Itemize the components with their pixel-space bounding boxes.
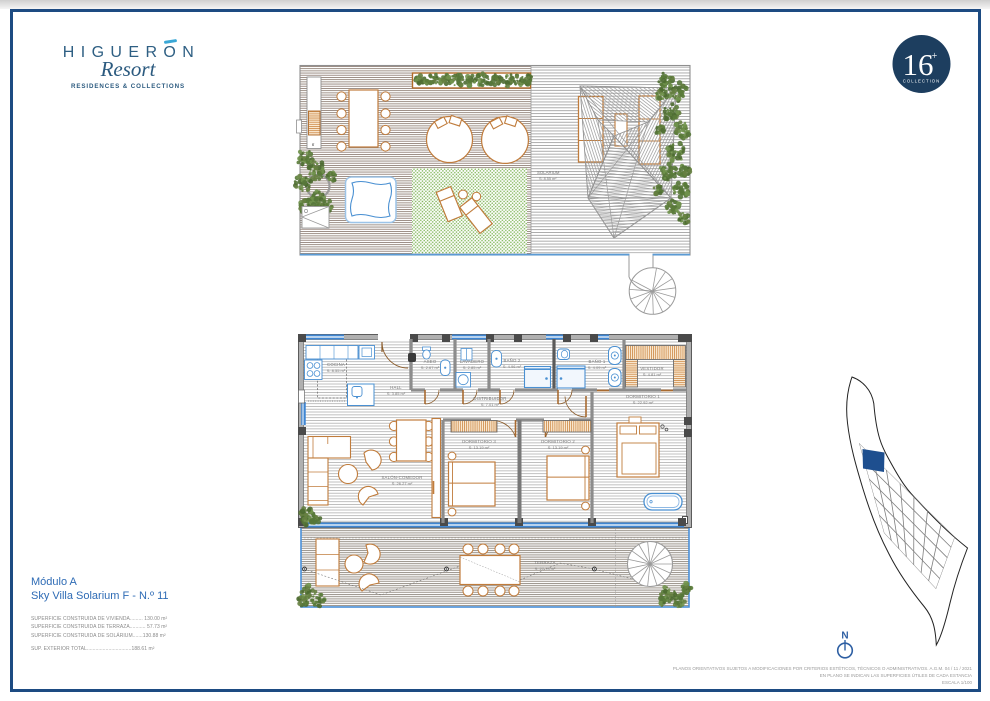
svg-text:S: 3.85 m²: S: 3.85 m² [387, 391, 406, 396]
svg-text:S: 4.81 m²: S: 4.81 m² [643, 372, 662, 377]
svg-text:S: 2.67 m²: S: 2.67 m² [421, 365, 440, 370]
svg-text:S: 4.09 m²: S: 4.09 m² [588, 365, 607, 370]
svg-text:DISTRIBUIDOR: DISTRIBUIDOR [473, 396, 506, 401]
svg-text:S: 7.01 m²: S: 7.01 m² [481, 402, 500, 407]
svg-text:SOLARIUM: SOLARIUM [537, 170, 560, 175]
svg-text:COCINA: COCINA [327, 362, 345, 367]
svg-text:HALL: HALL [390, 385, 402, 390]
svg-text:S: 13.19 m²: S: 13.19 m² [548, 445, 569, 450]
svg-text:BAÑO 2: BAÑO 2 [504, 358, 521, 363]
svg-text:S: 2.85 m²: S: 2.85 m² [463, 365, 482, 370]
svg-text:ASEO: ASEO [424, 359, 437, 364]
svg-text:BAÑO 1: BAÑO 1 [589, 359, 606, 364]
svg-text:TERRAZA: TERRAZA [534, 560, 555, 565]
svg-text:S: 13.19 m²: S: 13.19 m² [469, 445, 490, 450]
svg-text:S: 26.27 m²: S: 26.27 m² [392, 481, 413, 486]
svg-text:S: 8.55 m²: S: 8.55 m² [327, 368, 346, 373]
svg-text:SALÓN-COMEDOR: SALÓN-COMEDOR [381, 475, 422, 480]
svg-text:S: 8.55 m²: S: 8.55 m² [539, 177, 557, 181]
svg-text:DORMITORIO 2: DORMITORIO 2 [541, 439, 575, 444]
svg-text:N: N [841, 631, 848, 642]
svg-text:DORMITORIO 3: DORMITORIO 3 [462, 439, 496, 444]
svg-text:S: 22.92 m²: S: 22.92 m² [633, 400, 654, 405]
svg-text:LAVADERO: LAVADERO [460, 359, 485, 364]
svg-text:DORMITORIO 1: DORMITORIO 1 [626, 394, 660, 399]
svg-text:S: 4.96 m²: S: 4.96 m² [503, 364, 522, 369]
svg-text:S: 27.73 m²: S: 27.73 m² [535, 566, 556, 571]
svg-text:VESTIDOR: VESTIDOR [640, 366, 664, 371]
